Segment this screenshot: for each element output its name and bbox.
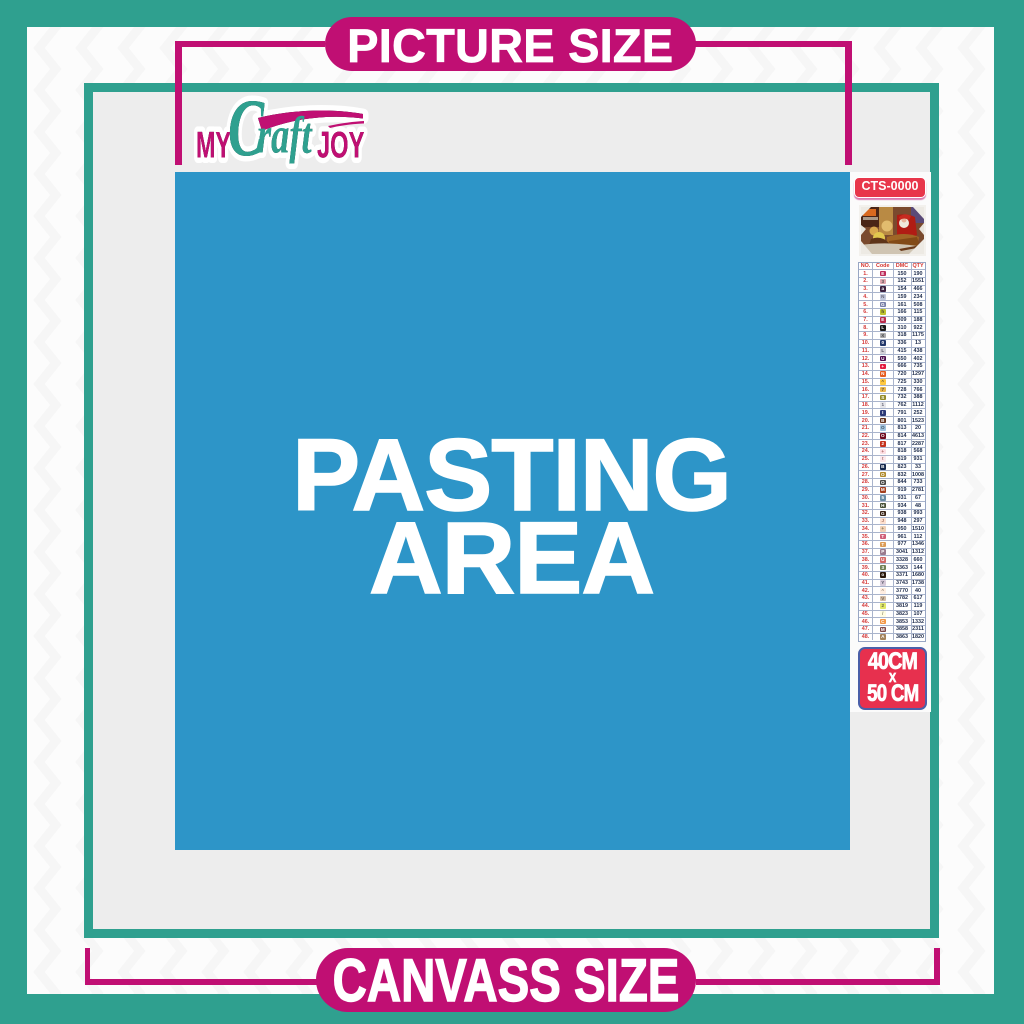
svg-text:MY: MY bbox=[196, 124, 231, 166]
svg-text:JOY: JOY bbox=[317, 124, 365, 166]
svg-text:raft: raft bbox=[257, 106, 313, 164]
